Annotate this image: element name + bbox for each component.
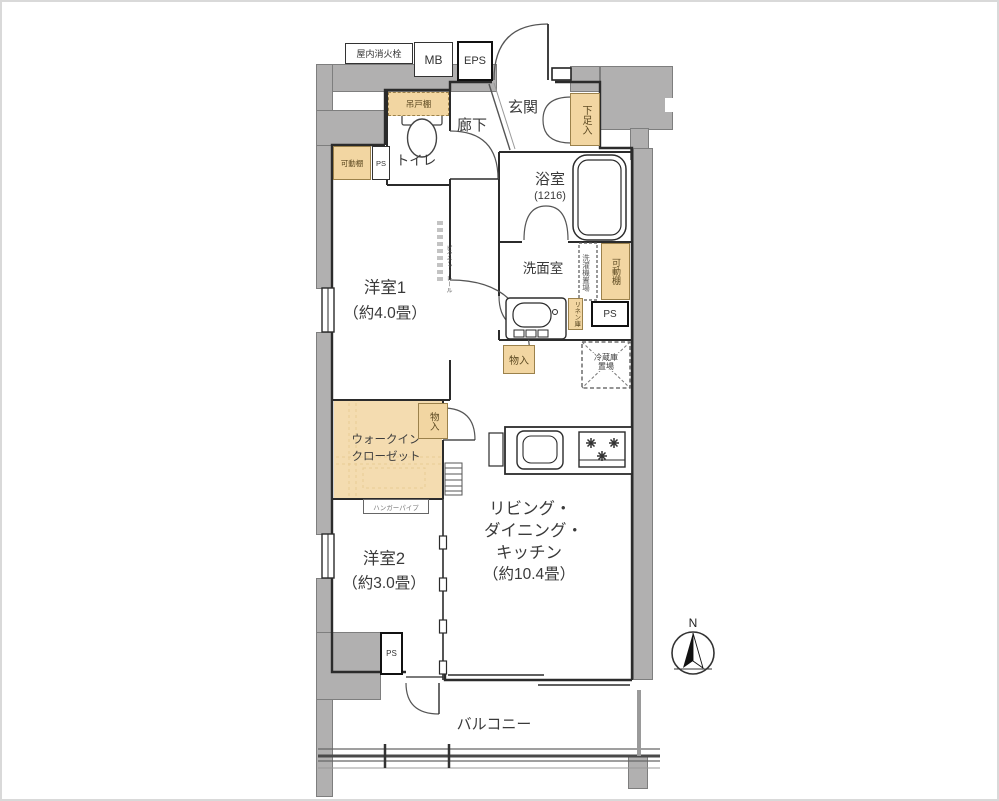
hall-storage-label: 物入 [509, 352, 529, 367]
picture-rail-label: ピクチャーレール [445, 245, 451, 313]
bathroom-label: 浴室 [512, 171, 588, 188]
wic-storage-label: 物入 [428, 412, 438, 431]
bedroom2-name: 洋室2 [344, 550, 424, 569]
linen-closet: リネン庫 [568, 298, 583, 330]
bedroom1-name: 洋室1 [345, 279, 425, 298]
toilet-movable-shelf-label: 可動棚 [341, 158, 364, 169]
wic-label-line2: クローゼット [334, 451, 438, 464]
toilet-ps-label: PS [376, 159, 386, 168]
washroom-movable-shelf: 可動棚 [601, 243, 630, 300]
toilet-ps-box: PS [372, 146, 390, 180]
hall-storage: 物入 [503, 345, 535, 374]
balcony-ps-box: PS [380, 632, 403, 675]
toilet-movable-shelf: 可動棚 [333, 146, 371, 180]
fire-hydrant-label: 屋内消火栓 [356, 47, 401, 60]
toilet-hanging-cupboard: 吊戸棚 [388, 92, 449, 116]
washroom-ps-label: PS [603, 309, 616, 320]
compass-icon [672, 632, 714, 674]
ldk-label-line3: キッチン [494, 544, 564, 563]
wic-storage: 物入 [418, 403, 448, 439]
balcony-ps-label: PS [386, 649, 397, 658]
eps-box: EPS [457, 41, 493, 81]
ldk-label-line2: ダイニング・ [484, 522, 574, 541]
balcony-label: バルコニー [454, 716, 534, 733]
fridge-space-label: 冷蔵庫 置場 [585, 353, 627, 371]
hanging-cupboard-label: 吊戸棚 [406, 98, 432, 110]
washroom-movable-shelf-label: 可動棚 [611, 258, 620, 285]
fridge-space-line2: 置場 [598, 362, 614, 371]
washroom-ps-box: PS [591, 301, 629, 327]
hanger-pipe-label: ハンガーパイプ [373, 502, 418, 512]
linen-closet-label: リネン庫 [572, 301, 579, 327]
ldk-label-line1: リビング・ [489, 500, 569, 519]
compass-north-label: N [683, 617, 703, 631]
ldk-size: （約10.4畳） [483, 566, 575, 584]
fridge-space-line1: 冷蔵庫 [594, 353, 618, 362]
corridor-label: 廊下 [442, 117, 502, 134]
washer-space-label: 洗濯機置場 [582, 247, 590, 299]
washroom-label: 洗面室 [505, 261, 581, 277]
eps-label: EPS [464, 55, 486, 67]
floorplan-canvas: 屋内消火栓 MB EPS 玄関 廊下 下足入 吊戸棚 トイレ 可動棚 PS 浴室… [0, 0, 999, 801]
toilet-label: トイレ [386, 153, 446, 169]
meter-box: MB [414, 42, 453, 77]
meter-box-label: MB [425, 53, 443, 67]
bedroom1-size: （約4.0畳） [339, 305, 431, 323]
shoe-box: 下足入 [570, 93, 600, 146]
genkan-label: 玄関 [493, 99, 553, 116]
bedroom2-size: （約3.0畳） [338, 575, 430, 593]
fire-hydrant-box: 屋内消火栓 [345, 43, 413, 64]
hanger-pipe-box: ハンガーパイプ [363, 499, 429, 514]
shoe-box-label: 下足入 [580, 105, 590, 135]
bathroom-size: (1216) [512, 190, 588, 203]
